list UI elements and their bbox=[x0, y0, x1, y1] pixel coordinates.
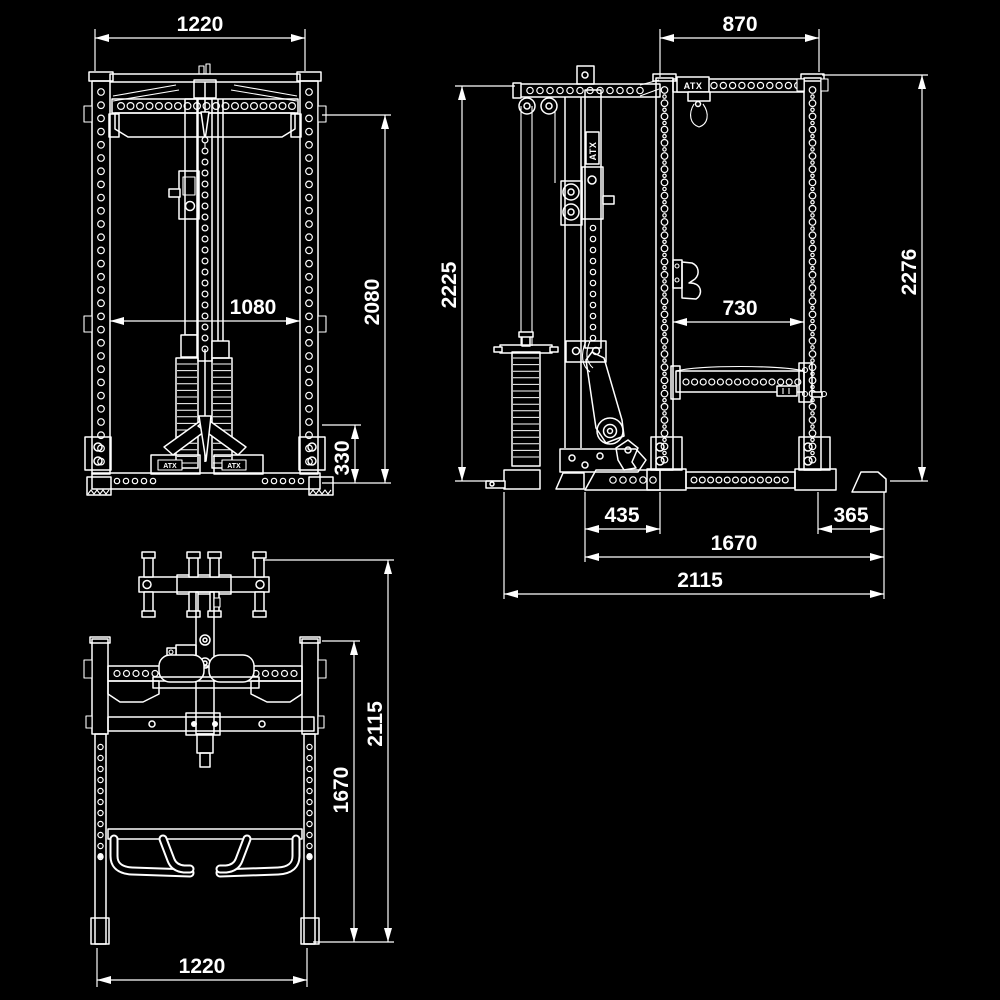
front-floor-holes-right bbox=[262, 478, 303, 483]
plan-rear-crossmember bbox=[139, 552, 269, 617]
svg-text:435: 435 bbox=[604, 504, 639, 527]
side-stack-plates bbox=[513, 358, 539, 457]
technical-drawing: ATX ATX 1220 1080 2080 bbox=[0, 0, 1000, 1000]
dim-side-front-foot: 435 bbox=[585, 492, 660, 562]
svg-text:1670: 1670 bbox=[711, 532, 758, 555]
svg-text:870: 870 bbox=[722, 13, 757, 36]
side-view: ATX bbox=[438, 13, 928, 599]
dim-side-overall-depth: 2115 bbox=[504, 492, 884, 599]
front-adjuster-bracket bbox=[169, 171, 199, 219]
tower-logo: ATX bbox=[588, 142, 598, 161]
front-weight-stack bbox=[164, 349, 246, 468]
svg-text:730: 730 bbox=[722, 297, 757, 320]
dim-plan-frame-length: 1670 bbox=[322, 641, 360, 942]
side-rack-frame: ATX bbox=[647, 74, 836, 490]
plan-knee-pads bbox=[153, 655, 259, 688]
safety-spotter-beam bbox=[671, 363, 827, 402]
front-left-upright-holes bbox=[98, 89, 105, 465]
svg-text:2225: 2225 bbox=[438, 261, 461, 308]
dim-front-frame-height: 2080 bbox=[322, 115, 391, 483]
platform-logo-left: ATX bbox=[163, 463, 177, 470]
side-weight-stack bbox=[486, 332, 558, 489]
svg-text:1220: 1220 bbox=[177, 13, 224, 36]
front-lat-tower bbox=[169, 99, 229, 361]
side-floor-beam-holes bbox=[691, 477, 788, 483]
svg-text:2080: 2080 bbox=[361, 279, 384, 326]
side-front-upright-holes bbox=[809, 87, 816, 463]
svg-text:1670: 1670 bbox=[330, 767, 353, 814]
front-floor-holes-left bbox=[114, 478, 155, 483]
j-hook bbox=[673, 260, 700, 299]
svg-text:2115: 2115 bbox=[364, 701, 387, 747]
front-base: ATX ATX bbox=[87, 455, 333, 495]
dim-side-rack-depth: 870 bbox=[660, 13, 819, 77]
safety-beam-holes bbox=[683, 379, 801, 385]
front-column-holes bbox=[202, 137, 208, 352]
plan-frame bbox=[84, 637, 326, 944]
svg-text:1220: 1220 bbox=[179, 955, 226, 978]
svg-text:365: 365 bbox=[833, 504, 868, 527]
side-rear-upright-holes bbox=[661, 87, 668, 463]
dim-plan-outer-width: 1220 bbox=[97, 948, 307, 987]
front-view: ATX ATX 1220 1080 2080 bbox=[84, 13, 391, 495]
dim-side-foot-span: 1670 bbox=[585, 532, 884, 557]
svg-text:1080: 1080 bbox=[230, 296, 277, 319]
side-column-holes bbox=[590, 225, 595, 340]
dim-front-base-height: 330 bbox=[322, 425, 361, 483]
dim-front-outer-width: 1220 bbox=[95, 13, 305, 71]
dim-side-rear-foot: 365 bbox=[818, 492, 884, 599]
svg-text:2115: 2115 bbox=[677, 569, 723, 592]
svg-text:330: 330 bbox=[331, 440, 354, 475]
plan-left-upright-holes bbox=[98, 744, 103, 859]
plan-crossbeam-holes-right bbox=[253, 671, 297, 677]
plan-safety-arms bbox=[108, 829, 302, 873]
plan-right-upright-holes bbox=[307, 744, 312, 859]
front-foot-holes bbox=[610, 477, 656, 483]
svg-text:2276: 2276 bbox=[898, 249, 921, 296]
dim-side-tower-height: 2225 bbox=[438, 86, 515, 481]
plan-view: 2115 1670 1220 bbox=[84, 552, 394, 987]
drawing-canvas: ATX ATX 1220 1080 2080 bbox=[0, 0, 1000, 1000]
side-top-beam-holes bbox=[711, 82, 801, 88]
dim-plan-overall-length: 2115 bbox=[263, 560, 394, 942]
platform-logo-right: ATX bbox=[227, 463, 241, 470]
front-right-upright-holes bbox=[306, 89, 313, 465]
beam-logo: ATX bbox=[684, 81, 703, 91]
plan-crossbeam-holes-left bbox=[114, 671, 158, 677]
front-beam-holes bbox=[118, 103, 296, 110]
side-lever-arm bbox=[560, 341, 646, 472]
dim-side-frame-height: 2276 bbox=[822, 75, 928, 481]
dim-side-inner-depth: 730 bbox=[673, 297, 804, 322]
